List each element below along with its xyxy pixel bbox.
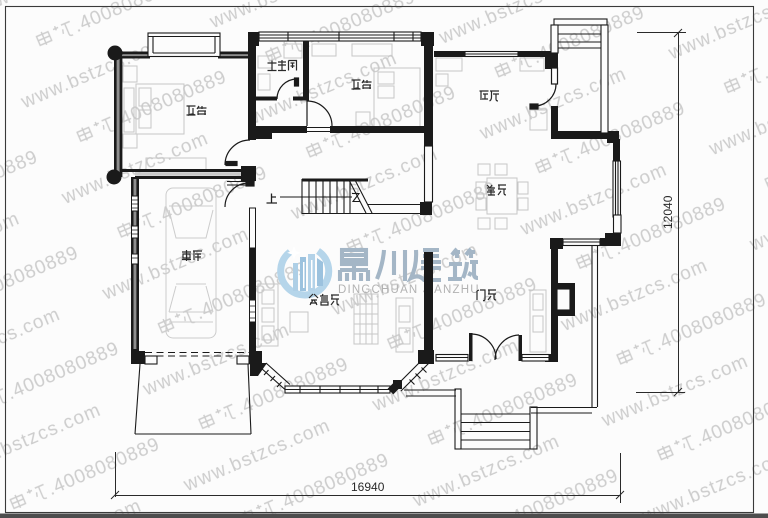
svg-text:12040: 12040	[661, 195, 675, 229]
svg-text:16940: 16940	[351, 480, 385, 494]
